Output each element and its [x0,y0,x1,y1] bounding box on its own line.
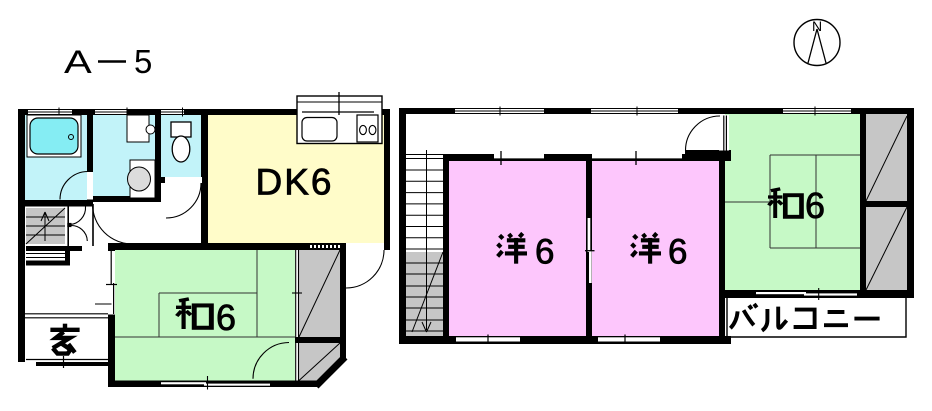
svg-text:6: 6 [535,233,554,272]
svg-text:6: 6 [668,233,687,272]
svg-text:N: N [812,18,822,34]
svg-text:A: A [64,44,92,80]
svg-text:6: 6 [216,297,236,338]
svg-text:6: 6 [805,185,825,226]
svg-text:5: 5 [134,43,152,80]
svg-text:DK6: DK6 [256,162,334,203]
